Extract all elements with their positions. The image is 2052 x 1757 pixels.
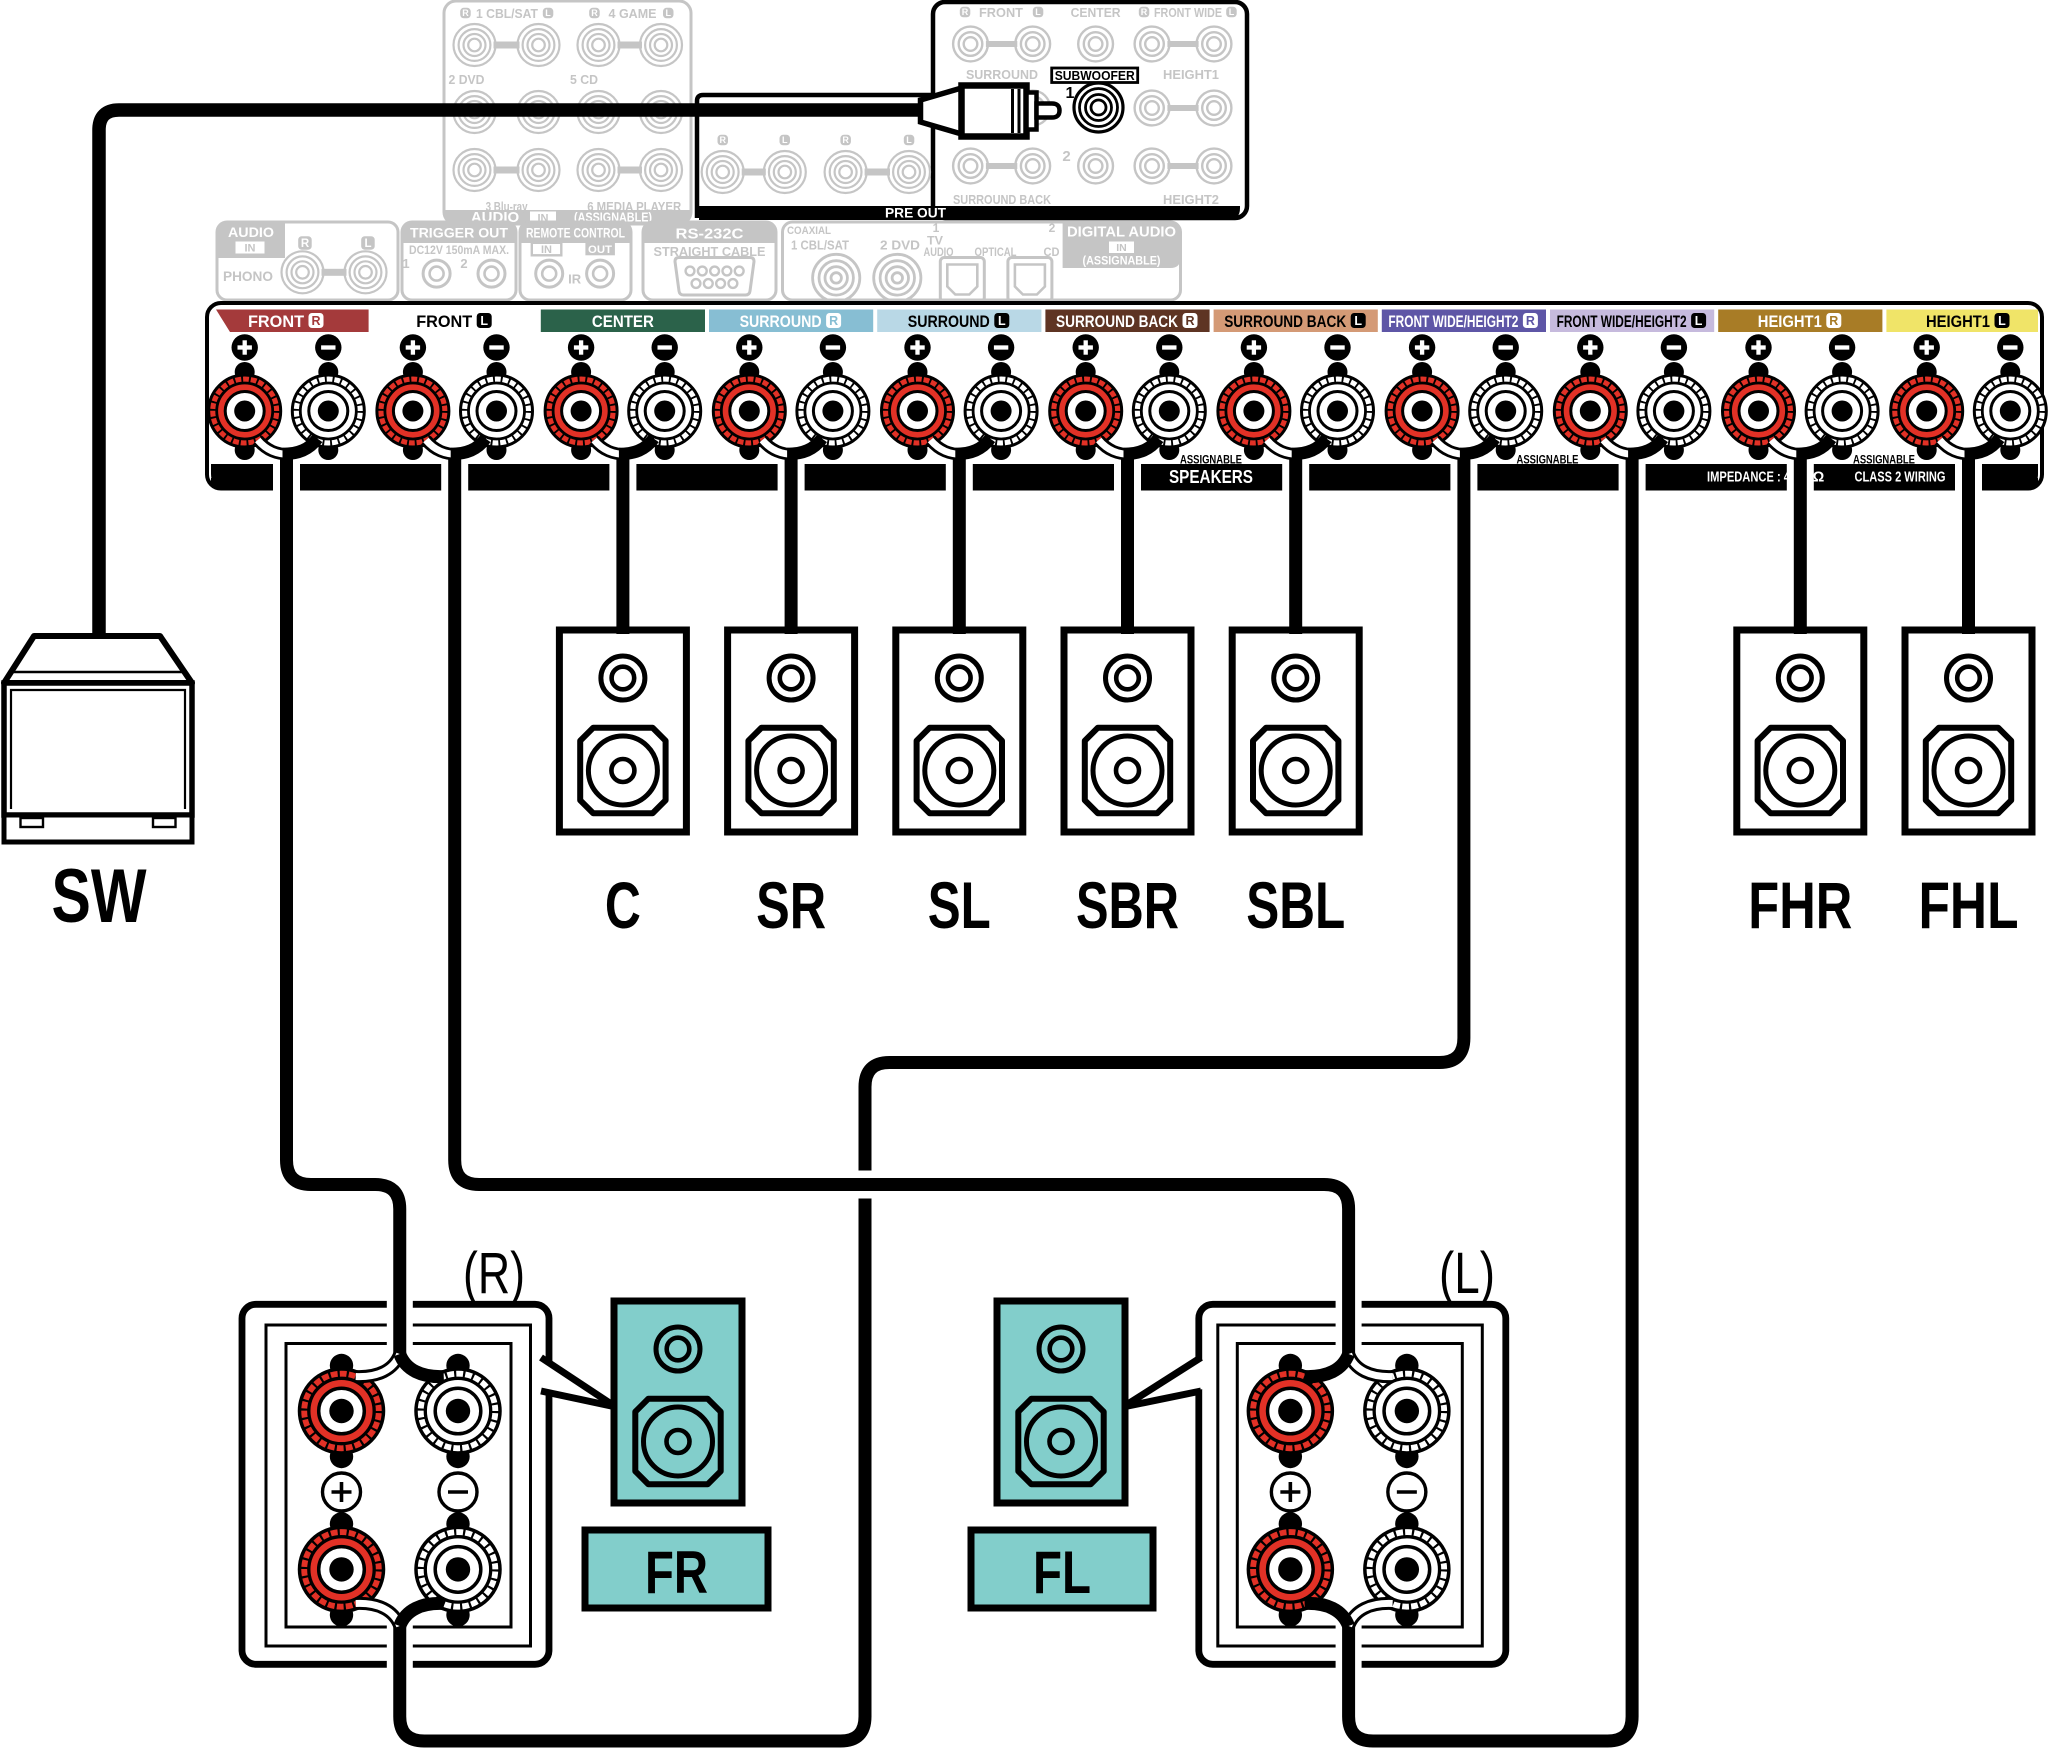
svg-text:FHL: FHL [1919,868,2019,942]
svg-text:2 DVD: 2 DVD [880,238,920,253]
svg-text:SBL: SBL [1246,868,1345,942]
svg-text:CENTER: CENTER [1071,5,1122,20]
svg-text:SR: SR [756,868,826,942]
svg-text:SPEAKERS: SPEAKERS [1169,467,1253,487]
svg-text:FL: FL [1033,1539,1091,1606]
svg-text:AUDIO: AUDIO [228,224,274,240]
svg-text:SUBWOOFER: SUBWOOFER [1055,69,1135,83]
svg-text:R: R [842,135,849,145]
svg-text:SL: SL [928,868,991,942]
svg-text:1 CBL/SAT: 1 CBL/SAT [791,238,849,253]
svg-text:L: L [666,8,672,18]
svg-text:SW: SW [52,854,147,939]
svg-text:IN: IN [1116,242,1127,254]
svg-text:L: L [1695,314,1703,328]
svg-text:C: C [605,868,641,942]
svg-text:2: 2 [460,256,467,271]
svg-text:PHONO: PHONO [223,269,273,284]
svg-text:6 MEDIA PLAYER: 6 MEDIA PLAYER [587,199,682,214]
svg-text:R: R [1141,7,1148,17]
svg-text:R: R [1829,314,1838,328]
svg-text:FRONT: FRONT [248,312,305,331]
svg-text:L: L [1998,314,2006,328]
svg-text:IN: IN [541,244,552,256]
svg-text:R: R [591,8,598,18]
svg-text:L: L [1035,7,1041,17]
svg-text:2 DVD: 2 DVD [449,72,485,87]
svg-text:SURROUND: SURROUND [966,67,1038,82]
svg-text:R: R [311,314,320,328]
svg-text:L: L [364,238,371,250]
svg-text:2: 2 [1049,221,1056,235]
svg-text:IN: IN [245,243,256,255]
svg-text:SBR: SBR [1076,868,1179,942]
svg-text:DIGITAL AUDIO: DIGITAL AUDIO [1067,224,1176,241]
svg-text:1 CBL/SAT: 1 CBL/SAT [476,6,538,21]
svg-text:(ASSIGNABLE): (ASSIGNABLE) [1083,254,1161,268]
svg-text:SURROUND: SURROUND [908,312,990,331]
svg-text:FRONT: FRONT [979,5,1023,20]
svg-text:RS-232C: RS-232C [676,226,744,243]
svg-text:IR: IR [568,272,582,287]
svg-text:ASSIGNABLE: ASSIGNABLE [1180,455,1242,467]
svg-text:TRIGGER OUT: TRIGGER OUT [410,225,508,241]
svg-text:3 Blu-ray: 3 Blu-ray [486,199,529,214]
svg-text:L: L [998,314,1006,328]
svg-text:2: 2 [1062,148,1070,165]
svg-text:L: L [545,8,551,18]
svg-text:FRONT: FRONT [416,312,473,331]
svg-text:OUT: OUT [588,244,612,256]
svg-text:1: 1 [402,256,409,271]
svg-text:L: L [1354,314,1362,328]
svg-text:FHR: FHR [1748,868,1852,942]
svg-text:L: L [782,135,788,145]
svg-text:FRONT WIDE/HEIGHT2: FRONT WIDE/HEIGHT2 [1388,312,1518,331]
svg-text:TV: TV [927,234,943,248]
svg-text:R: R [962,7,969,17]
svg-text:FRONT WIDE: FRONT WIDE [1154,5,1222,20]
svg-text:COAXIAL: COAXIAL [787,225,831,237]
svg-text:ASSIGNABLE: ASSIGNABLE [1517,455,1579,467]
svg-text:FRONT WIDE/HEIGHT2: FRONT WIDE/HEIGHT2 [1557,312,1687,331]
svg-text:SURROUND BACK: SURROUND BACK [1056,312,1179,331]
svg-text:4 GAME: 4 GAME [609,6,657,21]
svg-text:HEIGHT2: HEIGHT2 [1163,192,1219,207]
svg-text:L: L [906,135,912,145]
svg-text:PRE OUT: PRE OUT [885,205,946,221]
svg-text:FR: FR [645,1539,708,1606]
svg-text:SURROUND BACK: SURROUND BACK [953,192,1052,207]
svg-text:SURROUND: SURROUND [740,312,822,331]
svg-text:R: R [719,135,726,145]
svg-text:SURROUND BACK: SURROUND BACK [1224,312,1347,331]
svg-text:R: R [462,8,469,18]
svg-text:R: R [301,238,310,250]
svg-text:HEIGHT1: HEIGHT1 [1758,312,1822,331]
svg-text:L: L [1229,7,1235,17]
svg-text:CLASS 2 WIRING: CLASS 2 WIRING [1855,470,1946,486]
svg-text:REMOTE CONTROL: REMOTE CONTROL [526,225,625,241]
svg-text:R: R [1526,314,1535,328]
svg-text:IMPEDANCE : 4: IMPEDANCE : 4 [1707,470,1790,486]
svg-text:(R): (R) [463,1241,525,1306]
svg-text:HEIGHT1: HEIGHT1 [1163,67,1219,82]
svg-text:HEIGHT1: HEIGHT1 [1926,312,1990,331]
svg-text:L: L [480,314,488,328]
svg-text:1: 1 [1066,85,1075,102]
svg-text:R: R [829,314,838,328]
svg-text:ASSIGNABLE: ASSIGNABLE [1853,455,1915,467]
svg-text:5 CD: 5 CD [570,72,598,87]
svg-text:CENTER: CENTER [592,312,654,331]
svg-text:Ω: Ω [1813,470,1825,486]
svg-text:DC12V 150mA MAX.: DC12V 150mA MAX. [409,245,509,257]
svg-text:(L): (L) [1439,1241,1495,1306]
svg-text:R: R [1185,314,1194,328]
